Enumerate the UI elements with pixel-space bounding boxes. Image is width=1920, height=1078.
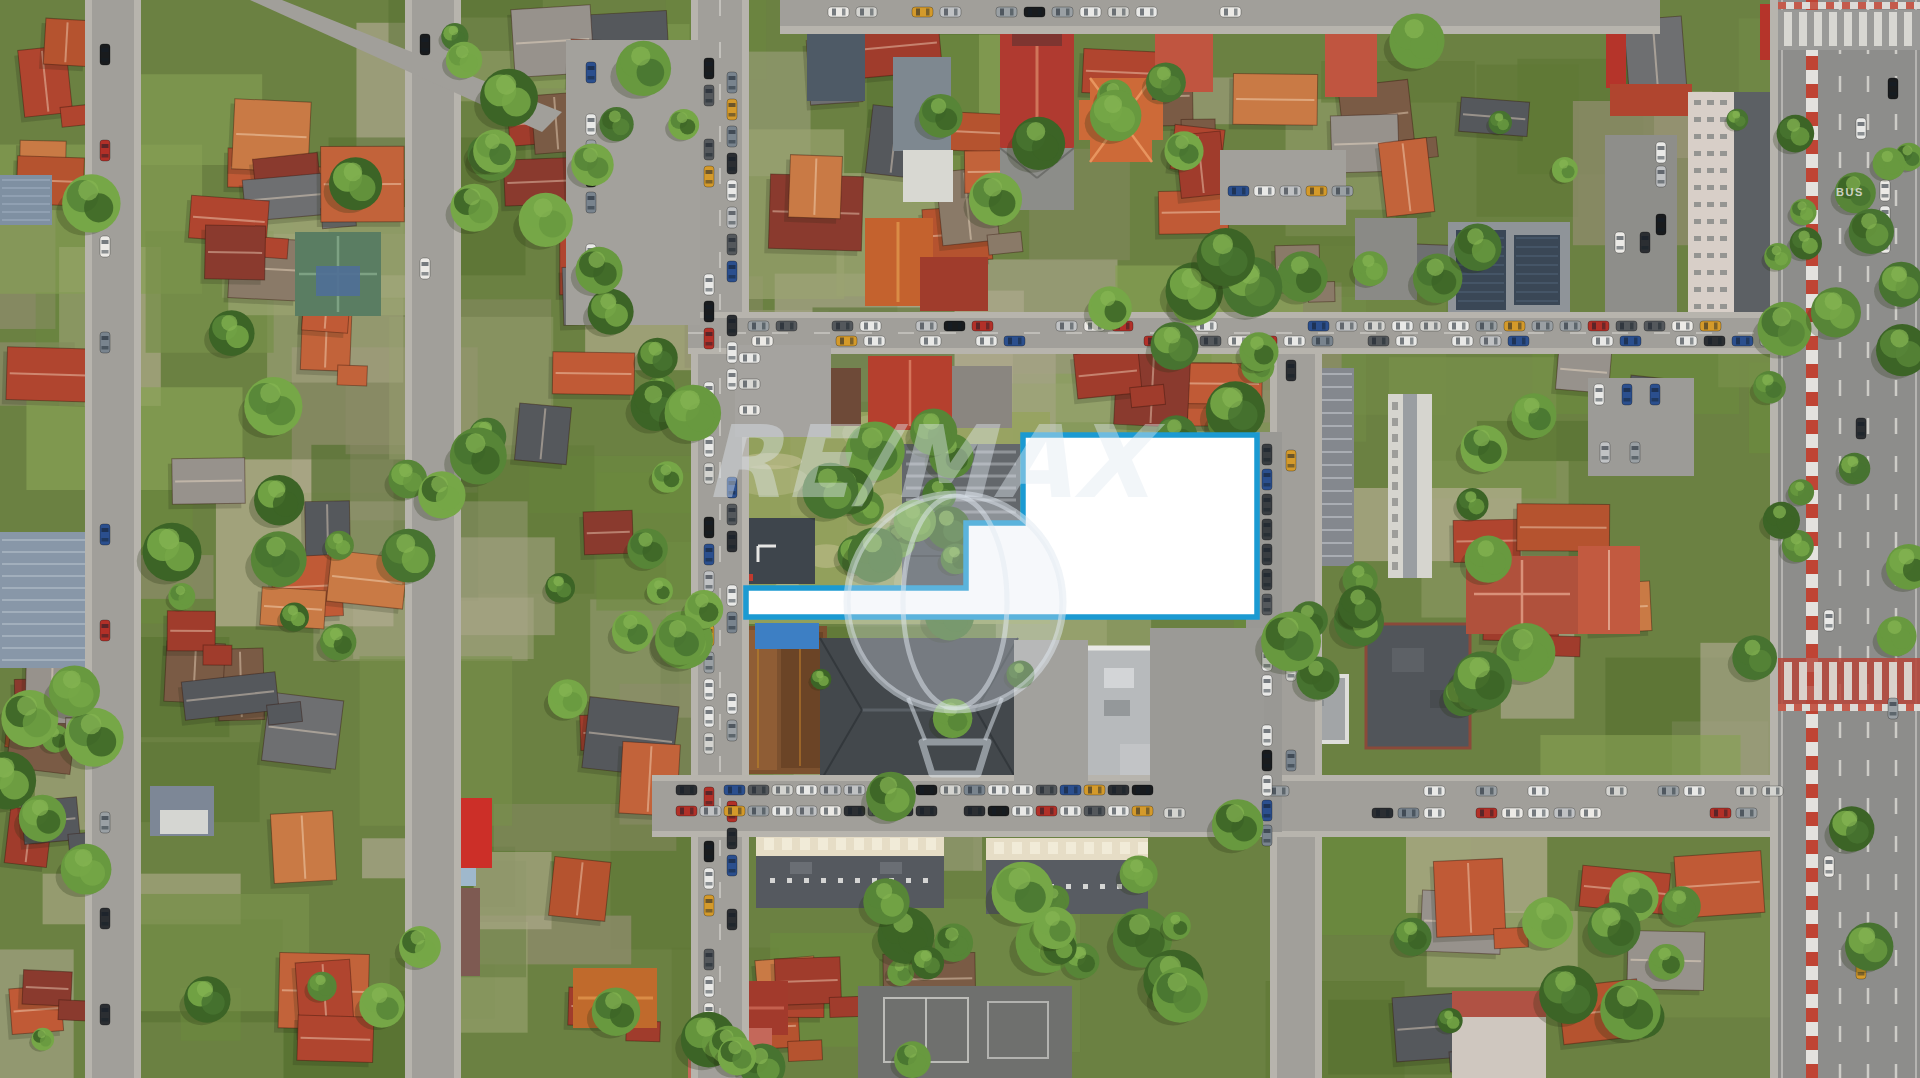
- parked-car: [727, 72, 737, 93]
- parked-car: [1368, 336, 1389, 346]
- parked-car: [944, 321, 965, 331]
- parked-car: [748, 785, 769, 795]
- parked-car: [1888, 698, 1898, 719]
- parked-car: [727, 207, 737, 228]
- parked-car: [727, 855, 737, 876]
- parked-car: [864, 336, 885, 346]
- parked-car: [1262, 569, 1272, 590]
- parked-car: [1164, 808, 1185, 818]
- parked-car: [727, 612, 737, 633]
- parked-car: [704, 301, 714, 322]
- parked-car: [704, 976, 714, 997]
- parked-car: [1476, 786, 1497, 796]
- parked-car: [704, 679, 714, 700]
- parked-car: [1200, 336, 1221, 346]
- parked-car: [1060, 785, 1081, 795]
- parked-car: [1084, 785, 1105, 795]
- bus-road-marking: BUS: [1836, 186, 1864, 198]
- parked-car: [704, 85, 714, 106]
- parked-car: [1136, 7, 1157, 17]
- watermark-text: RE/MAX: [704, 404, 1166, 521]
- parked-car: [964, 785, 985, 795]
- parked-car: [1262, 825, 1272, 846]
- parked-car: [704, 544, 714, 565]
- parked-car: [100, 44, 110, 65]
- parked-car: [1280, 186, 1301, 196]
- parked-car: [724, 785, 745, 795]
- parked-car: [420, 258, 430, 279]
- parked-car: [1060, 806, 1081, 816]
- parked-car: [1132, 806, 1153, 816]
- parked-car: [727, 153, 737, 174]
- parked-car: [704, 274, 714, 295]
- parked-car: [1888, 78, 1898, 99]
- parked-car: [1736, 786, 1757, 796]
- house-roof: [1229, 74, 1318, 131]
- parked-car: [1262, 519, 1272, 540]
- parked-car: [1108, 7, 1129, 17]
- parked-car: [912, 7, 933, 17]
- parked-car: [704, 868, 714, 889]
- house-roof: [200, 225, 265, 285]
- house-roof: [168, 458, 246, 510]
- parked-car: [1286, 360, 1296, 381]
- parked-car: [1856, 118, 1866, 139]
- house-roof: [1374, 138, 1435, 223]
- parked-car: [1700, 321, 1721, 331]
- house-roof: [784, 154, 842, 223]
- parked-car: [1286, 750, 1296, 771]
- parked-car: [1336, 321, 1357, 331]
- parked-car: [1704, 336, 1725, 346]
- parked-car: [916, 806, 937, 816]
- parked-car: [1656, 142, 1666, 163]
- parked-car: [727, 585, 737, 606]
- parked-car: [1452, 336, 1473, 346]
- parked-car: [1448, 321, 1469, 331]
- parked-car: [820, 785, 841, 795]
- parked-car: [100, 812, 110, 833]
- parked-car: [727, 828, 737, 849]
- parked-car: [1588, 321, 1609, 331]
- parked-car: [1262, 544, 1272, 565]
- parked-car: [856, 7, 877, 17]
- parked-car: [1306, 186, 1327, 196]
- parked-car: [1262, 469, 1272, 490]
- parked-car: [1656, 166, 1666, 187]
- parked-car: [1132, 785, 1153, 795]
- parked-car: [1024, 7, 1045, 17]
- parked-car: [1332, 186, 1353, 196]
- parked-car: [1398, 808, 1419, 818]
- blue-tarp-roof: [755, 623, 819, 649]
- parked-car: [100, 908, 110, 929]
- parked-car: [1312, 336, 1333, 346]
- parked-car: [1640, 232, 1650, 253]
- parked-car: [704, 706, 714, 727]
- parked-car: [1262, 775, 1272, 796]
- parked-car: [100, 236, 110, 257]
- parked-car: [1220, 7, 1241, 17]
- parked-car: [1052, 7, 1073, 17]
- parked-car: [1262, 494, 1272, 515]
- parked-car: [1620, 336, 1641, 346]
- parked-car: [1284, 336, 1305, 346]
- parked-car: [727, 261, 737, 282]
- aerial-photo-canvas: BUS RE/MAX: [0, 0, 1920, 1078]
- parked-car: [704, 328, 714, 349]
- playground-court: [858, 986, 1072, 1078]
- parked-car: [1528, 786, 1549, 796]
- dark-roof-house: [807, 25, 865, 101]
- parked-car: [727, 909, 737, 930]
- parked-car: [1262, 444, 1272, 465]
- parked-car: [1710, 808, 1731, 818]
- parked-car: [727, 99, 737, 120]
- parked-car: [100, 140, 110, 161]
- parked-car: [727, 693, 737, 714]
- parked-car: [916, 785, 937, 795]
- parked-car: [1600, 442, 1610, 463]
- parked-car: [748, 806, 769, 816]
- parked-car: [1504, 321, 1525, 331]
- parked-car: [586, 192, 596, 213]
- parked-car: [1560, 321, 1581, 331]
- parked-car: [1108, 785, 1129, 795]
- parked-car: [676, 806, 697, 816]
- house-roof: [2, 347, 90, 407]
- parked-car: [752, 336, 773, 346]
- parked-car: [1392, 321, 1413, 331]
- parked-car: [1004, 336, 1025, 346]
- parked-car: [1658, 786, 1679, 796]
- parked-car: [940, 785, 961, 795]
- parked-car: [828, 7, 849, 17]
- aerial-photo: BUS RE/MAX: [0, 0, 1920, 1078]
- parked-car: [739, 379, 760, 389]
- parked-car: [776, 321, 797, 331]
- parked-car: [916, 321, 937, 331]
- parked-car: [1606, 786, 1627, 796]
- parked-car: [1592, 336, 1613, 346]
- parked-car: [704, 733, 714, 754]
- parked-car: [796, 785, 817, 795]
- parked-car: [739, 353, 760, 363]
- parked-car: [1036, 806, 1057, 816]
- parked-car: [1476, 808, 1497, 818]
- parked-car: [586, 114, 596, 135]
- parked-car: [1420, 321, 1441, 331]
- parked-car: [940, 7, 961, 17]
- parked-car: [100, 332, 110, 353]
- parked-car: [1856, 418, 1866, 439]
- parked-car: [772, 785, 793, 795]
- parked-car: [1036, 785, 1057, 795]
- parked-car: [988, 785, 1009, 795]
- parked-car: [1364, 321, 1385, 331]
- parked-car: [704, 139, 714, 160]
- parked-car: [1532, 321, 1553, 331]
- parked-car: [704, 166, 714, 187]
- ribbed-roof: [0, 175, 52, 225]
- parked-car: [1580, 808, 1601, 818]
- parked-car: [1736, 808, 1757, 818]
- parked-car: [704, 571, 714, 592]
- parked-car: [1286, 450, 1296, 471]
- parked-car: [1012, 785, 1033, 795]
- parked-car: [700, 806, 721, 816]
- parked-car: [1656, 214, 1666, 235]
- parked-car: [1732, 336, 1753, 346]
- parked-car: [1650, 384, 1660, 405]
- parked-car: [988, 806, 1009, 816]
- parked-car: [1594, 384, 1604, 405]
- parked-car: [704, 787, 714, 808]
- parked-car: [724, 806, 745, 816]
- parked-car: [704, 949, 714, 970]
- parked-car: [1080, 7, 1101, 17]
- parked-car: [1254, 186, 1275, 196]
- parked-car: [1012, 806, 1033, 816]
- parked-car: [1616, 321, 1637, 331]
- parked-car: [1762, 786, 1783, 796]
- parked-car: [727, 180, 737, 201]
- parked-car: [832, 321, 853, 331]
- parked-car: [704, 841, 714, 862]
- parked-car: [1630, 442, 1640, 463]
- parked-car: [748, 321, 769, 331]
- parked-car: [727, 720, 737, 741]
- parked-car: [1622, 384, 1632, 405]
- parked-car: [844, 785, 865, 795]
- parked-car: [820, 806, 841, 816]
- parked-car: [1615, 232, 1625, 253]
- parked-car: [1262, 725, 1272, 746]
- parked-car: [1824, 856, 1834, 877]
- parked-car: [1424, 786, 1445, 796]
- parked-car: [727, 126, 737, 147]
- parked-car: [420, 34, 430, 55]
- parked-car: [1108, 806, 1129, 816]
- parked-car: [1308, 321, 1329, 331]
- parked-car: [1262, 750, 1272, 771]
- parked-car: [1554, 808, 1575, 818]
- parked-car: [1672, 321, 1693, 331]
- parked-car: [1228, 186, 1249, 196]
- parked-car: [772, 806, 793, 816]
- parked-car: [1508, 336, 1529, 346]
- house-roof: [548, 352, 634, 400]
- parked-car: [1676, 336, 1697, 346]
- parked-car: [676, 785, 697, 795]
- parked-car: [1824, 610, 1834, 631]
- parked-car: [1084, 806, 1105, 816]
- house-roof: [266, 811, 336, 889]
- parked-car: [100, 1004, 110, 1025]
- parked-car: [727, 342, 737, 363]
- parked-car: [727, 369, 737, 390]
- parked-car: [972, 321, 993, 331]
- parked-car: [920, 336, 941, 346]
- parked-car: [964, 806, 985, 816]
- house-roof: [544, 856, 611, 926]
- parked-car: [1528, 808, 1549, 818]
- parked-car: [1880, 180, 1890, 201]
- parked-car: [704, 895, 714, 916]
- parked-car: [1684, 786, 1705, 796]
- house-roof: [510, 403, 572, 470]
- parked-car: [1476, 321, 1497, 331]
- parked-car: [1396, 336, 1417, 346]
- parked-car: [100, 620, 110, 641]
- parked-car: [1056, 321, 1077, 331]
- parked-car: [796, 806, 817, 816]
- parked-car: [860, 321, 881, 331]
- parked-car: [976, 336, 997, 346]
- parked-car: [100, 524, 110, 545]
- house-roof: [39, 18, 90, 72]
- parked-car: [1372, 808, 1393, 818]
- parked-car: [996, 7, 1017, 17]
- parked-car: [1262, 594, 1272, 615]
- parked-car: [586, 62, 596, 83]
- parked-car: [1262, 800, 1272, 821]
- parked-car: [1502, 808, 1523, 818]
- parked-car: [836, 336, 857, 346]
- parked-car: [704, 58, 714, 79]
- parked-car: [727, 234, 737, 255]
- parked-car: [1480, 336, 1501, 346]
- parked-car: [1644, 321, 1665, 331]
- parked-car: [1262, 675, 1272, 696]
- parked-car: [1424, 808, 1445, 818]
- parked-car: [727, 531, 737, 552]
- parked-car: [727, 315, 737, 336]
